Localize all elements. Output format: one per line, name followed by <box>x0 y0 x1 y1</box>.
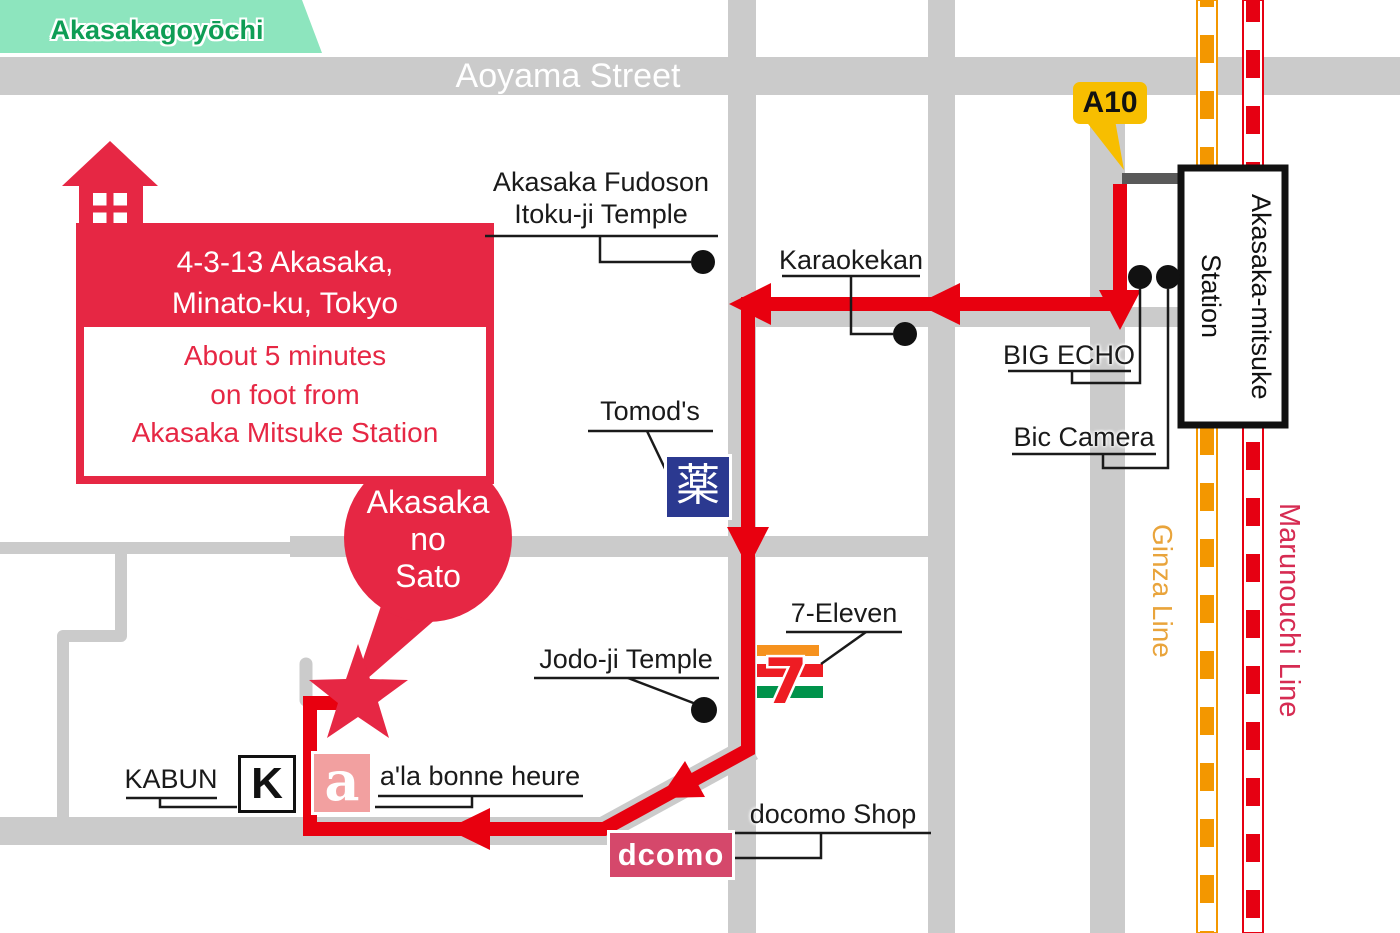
railway-ginza <box>1197 0 1217 933</box>
poi-dot-fudoson <box>691 250 715 274</box>
walk-time-note: About 5 minutes on foot from Akasaka Mit… <box>88 337 482 453</box>
region-label: Akasakagoyōchi <box>50 15 263 46</box>
road-vertical-2 <box>928 0 955 933</box>
label-a-la-bonne-heure: a'la bonne heure <box>380 761 580 793</box>
connector-fudoson <box>600 236 691 262</box>
station-exit-bar <box>1122 173 1182 184</box>
access-map: 7 <box>0 0 1400 933</box>
label-kabun: KABUN <box>124 764 217 796</box>
ginza-line-track <box>1197 0 1217 933</box>
destination-balloon-label: Akasaka no Sato <box>367 484 490 594</box>
label-big-echo: BIG ECHO <box>1003 340 1135 372</box>
label-bic-camera: Bic Camera <box>1013 422 1154 454</box>
connector-seven-eleven <box>821 632 866 664</box>
label-tomods: Tomod's <box>600 396 700 428</box>
connector-kabun <box>160 798 237 807</box>
kabun-icon: K <box>238 755 296 813</box>
ginza-line-label: Ginza Line <box>1146 524 1178 658</box>
poi-dot-big-echo <box>1128 265 1152 289</box>
label-fudoson: Akasaka Fudoson Itoku-ji Temple <box>493 167 709 230</box>
seven-logo-glyph: 7 <box>764 645 807 718</box>
road-mid-left-thin <box>0 542 300 554</box>
exit-a10-badge: A10 <box>1073 82 1147 124</box>
docomo-logo: dcomo <box>610 833 732 877</box>
marunouchi-line-label: Marunouchi Line <box>1272 503 1305 717</box>
poi-dot-jodoji <box>691 697 717 723</box>
label-docomo-shop: docomo Shop <box>750 799 917 831</box>
poi-dot-karaokekan <box>893 322 917 346</box>
road-left-zigzag <box>63 552 121 822</box>
connector-jodoji <box>628 678 696 704</box>
house-icon <box>62 141 158 230</box>
connector-tomods <box>647 431 669 477</box>
aoyama-street-label: Aoyama Street <box>456 57 681 96</box>
railway-marunouchi <box>1243 0 1263 933</box>
road-aoyama <box>0 57 1400 95</box>
pharmacy-icon: 薬 <box>667 457 729 517</box>
house-roof <box>62 141 158 186</box>
a-la-bonne-heure-icon: a <box>314 754 370 812</box>
seven-eleven-logo: 7 <box>757 645 823 718</box>
destination-address: 4-3-13 Akasaka, Minato-ku, Tokyo <box>80 243 490 324</box>
label-karaokekan: Karaokekan <box>779 245 923 277</box>
poi-dot-bic-camera <box>1156 265 1180 289</box>
destination-star-icon <box>309 644 408 738</box>
connector-a-la-bonne-heure <box>375 796 472 807</box>
station-name-label: Akasaka-mitsuke Station <box>1181 168 1285 425</box>
label-jodoji: Jodo-ji Temple <box>539 644 713 676</box>
label-seven-eleven: 7-Eleven <box>791 598 898 630</box>
